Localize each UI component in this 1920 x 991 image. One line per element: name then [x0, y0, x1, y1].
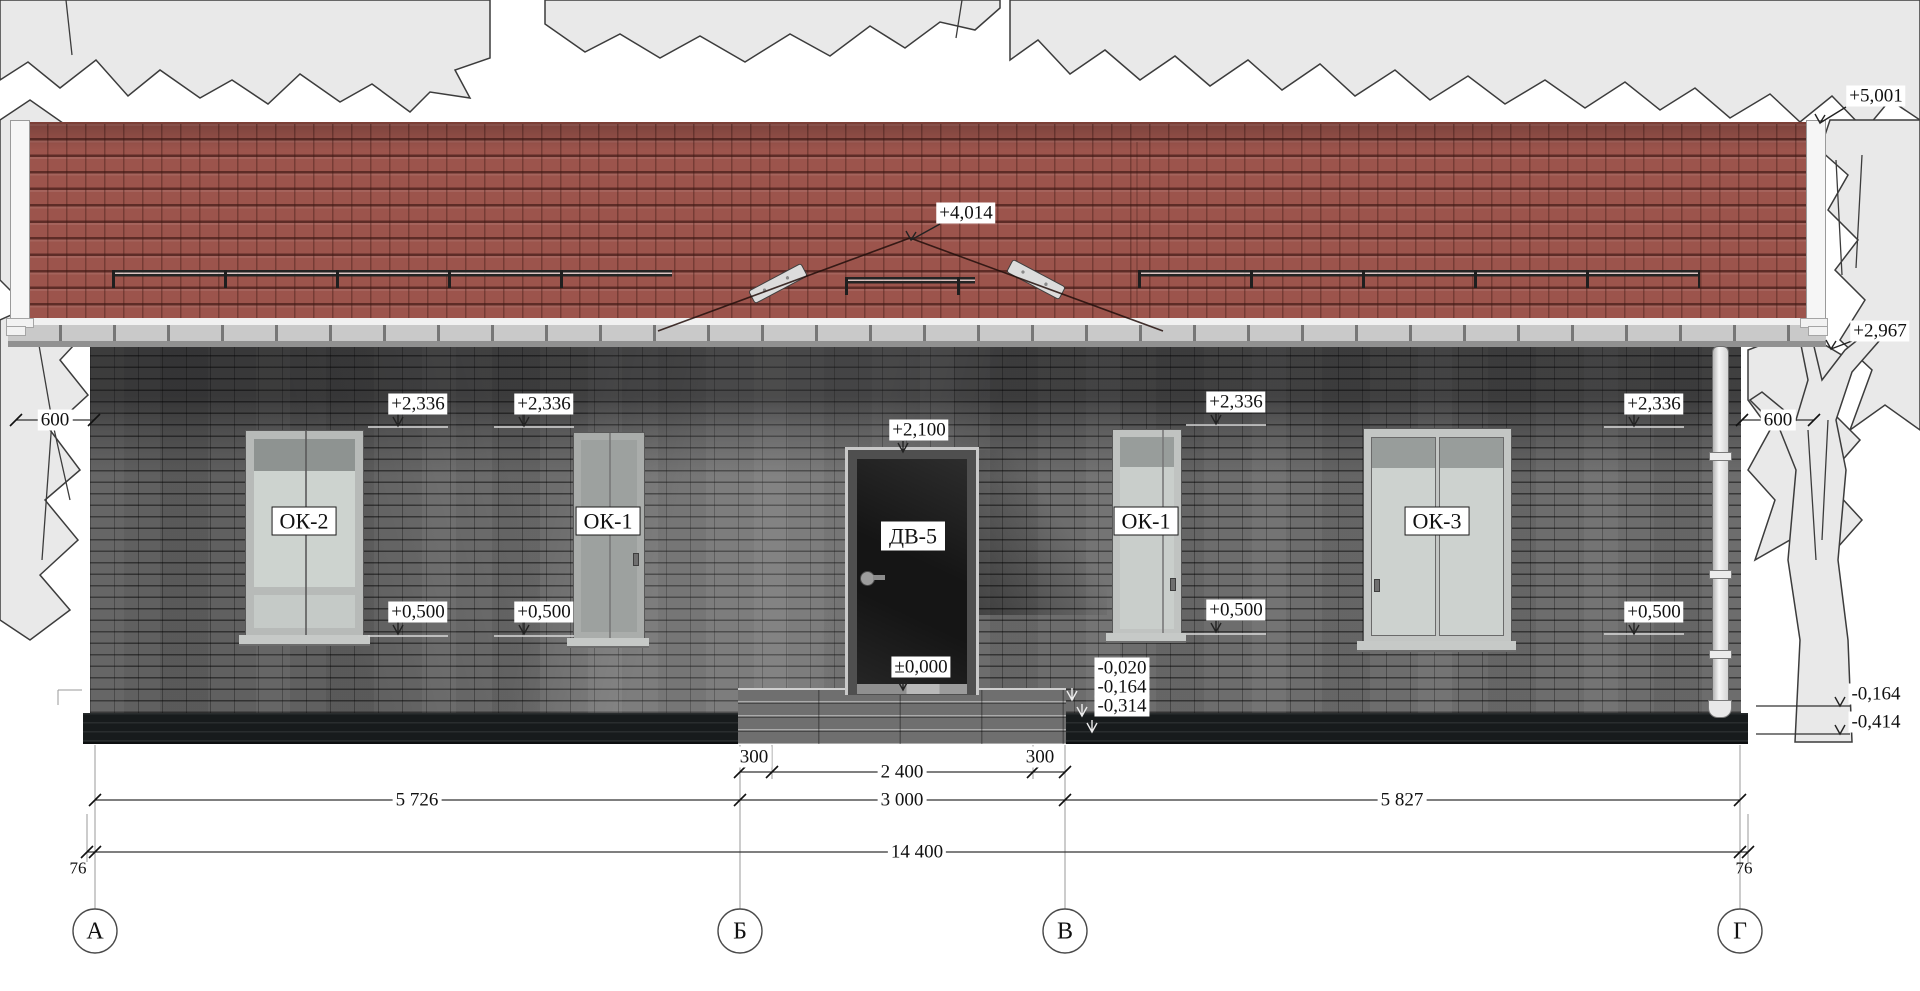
door-threshold	[857, 684, 967, 694]
sill-ok1-left	[567, 638, 649, 648]
downspout-shoe	[1708, 700, 1732, 718]
dim-step-width: 2 400	[878, 762, 927, 783]
window-ok1-left-divider	[609, 433, 611, 639]
window-ok1-left	[573, 432, 645, 640]
door-handle-stub	[873, 575, 885, 580]
level-minus0164-right: -0,164	[1848, 684, 1903, 705]
level-minus0164: -0,164	[1094, 677, 1149, 698]
tree-foliage-left-lower	[0, 300, 88, 640]
snow-guard-left	[112, 270, 672, 288]
level-plus2336: +2,336	[1206, 392, 1265, 413]
sill-ok1-right	[1106, 633, 1186, 643]
tag-door-dv5: ДВ-5	[881, 522, 945, 551]
barge-board-right	[1806, 120, 1826, 322]
level-plus0500: +0,500	[1206, 600, 1265, 621]
dim-span-ab: 5 726	[393, 790, 442, 811]
level-plus5001: +5,001	[1846, 86, 1905, 107]
tag-window-ok3: ОК-3	[1405, 507, 1470, 536]
dim-offset-left: 76	[67, 858, 90, 879]
tree-foliage-top-right	[1010, 0, 1920, 130]
level-plus0500: +0,500	[388, 602, 447, 623]
dim-eave-right: 600	[1761, 410, 1796, 431]
sill-ok2	[239, 635, 370, 646]
dim-total: 14 400	[888, 842, 946, 863]
level-plus2967: +2,967	[1850, 321, 1909, 342]
window-ok1-right-handle	[1170, 578, 1176, 591]
level-plus2336: +2,336	[514, 394, 573, 415]
tag-window-ok1-right: ОК-1	[1114, 507, 1179, 536]
dim-span-vg: 5 827	[1378, 790, 1427, 811]
level-plus4014: +4,014	[936, 203, 995, 224]
downspout-collar	[1709, 570, 1732, 579]
level-plus2336: +2,336	[388, 394, 447, 415]
barge-board-left	[10, 120, 30, 322]
downspout-collar	[1709, 452, 1732, 461]
tree-foliage-top-left	[0, 0, 490, 112]
tag-window-ok2: ОК-2	[272, 507, 337, 536]
eave-corner-trim-right2	[1808, 326, 1828, 336]
eave-shadow	[8, 341, 1826, 347]
tree-foliage-top-center	[545, 0, 1000, 62]
snow-guard-center	[845, 277, 975, 295]
level-minus0020: -0,020	[1094, 658, 1149, 679]
window-ok3-handle	[1374, 579, 1380, 592]
level-minus0314: -0,314	[1094, 696, 1149, 717]
snow-guard-right	[1138, 270, 1700, 288]
dim-eave-left: 600	[38, 410, 73, 431]
window-ok3	[1363, 428, 1512, 645]
window-ok3-left-leaf	[1371, 437, 1436, 636]
eave-corner-trim-left2	[6, 326, 26, 336]
sill-ok3	[1357, 641, 1516, 652]
downspout-collar	[1709, 650, 1732, 659]
level-plus2336: +2,336	[1624, 394, 1683, 415]
window-ok3-right-leaf	[1439, 437, 1504, 636]
axis-label-b: Б	[733, 919, 747, 946]
entrance-steps	[738, 688, 1066, 744]
level-plus2100: +2,100	[889, 420, 948, 441]
window-ok1-left-handle	[633, 553, 639, 566]
tag-window-ok1-left: ОК-1	[576, 507, 641, 536]
axis-label-v: В	[1057, 919, 1073, 946]
dim-offset-right: 76	[1733, 858, 1756, 879]
elevation-drawing: +5,001 +4,014 +2,967 +2,336 +2,336 +2,33…	[0, 0, 1920, 991]
axis-label-a: А	[86, 919, 103, 946]
level-zero: ±0,000	[891, 657, 950, 678]
level-plus0500: +0,500	[1624, 602, 1683, 623]
wall-shadow	[975, 450, 1107, 615]
dim-step-side-right: 300	[1023, 747, 1058, 768]
level-minus0414-right: -0,414	[1848, 712, 1903, 733]
level-plus0500: +0,500	[514, 602, 573, 623]
dim-step-side-left: 300	[737, 747, 772, 768]
dim-span-bv: 3 000	[878, 790, 927, 811]
axis-label-g: Г	[1733, 919, 1747, 946]
gutter	[8, 325, 1826, 341]
